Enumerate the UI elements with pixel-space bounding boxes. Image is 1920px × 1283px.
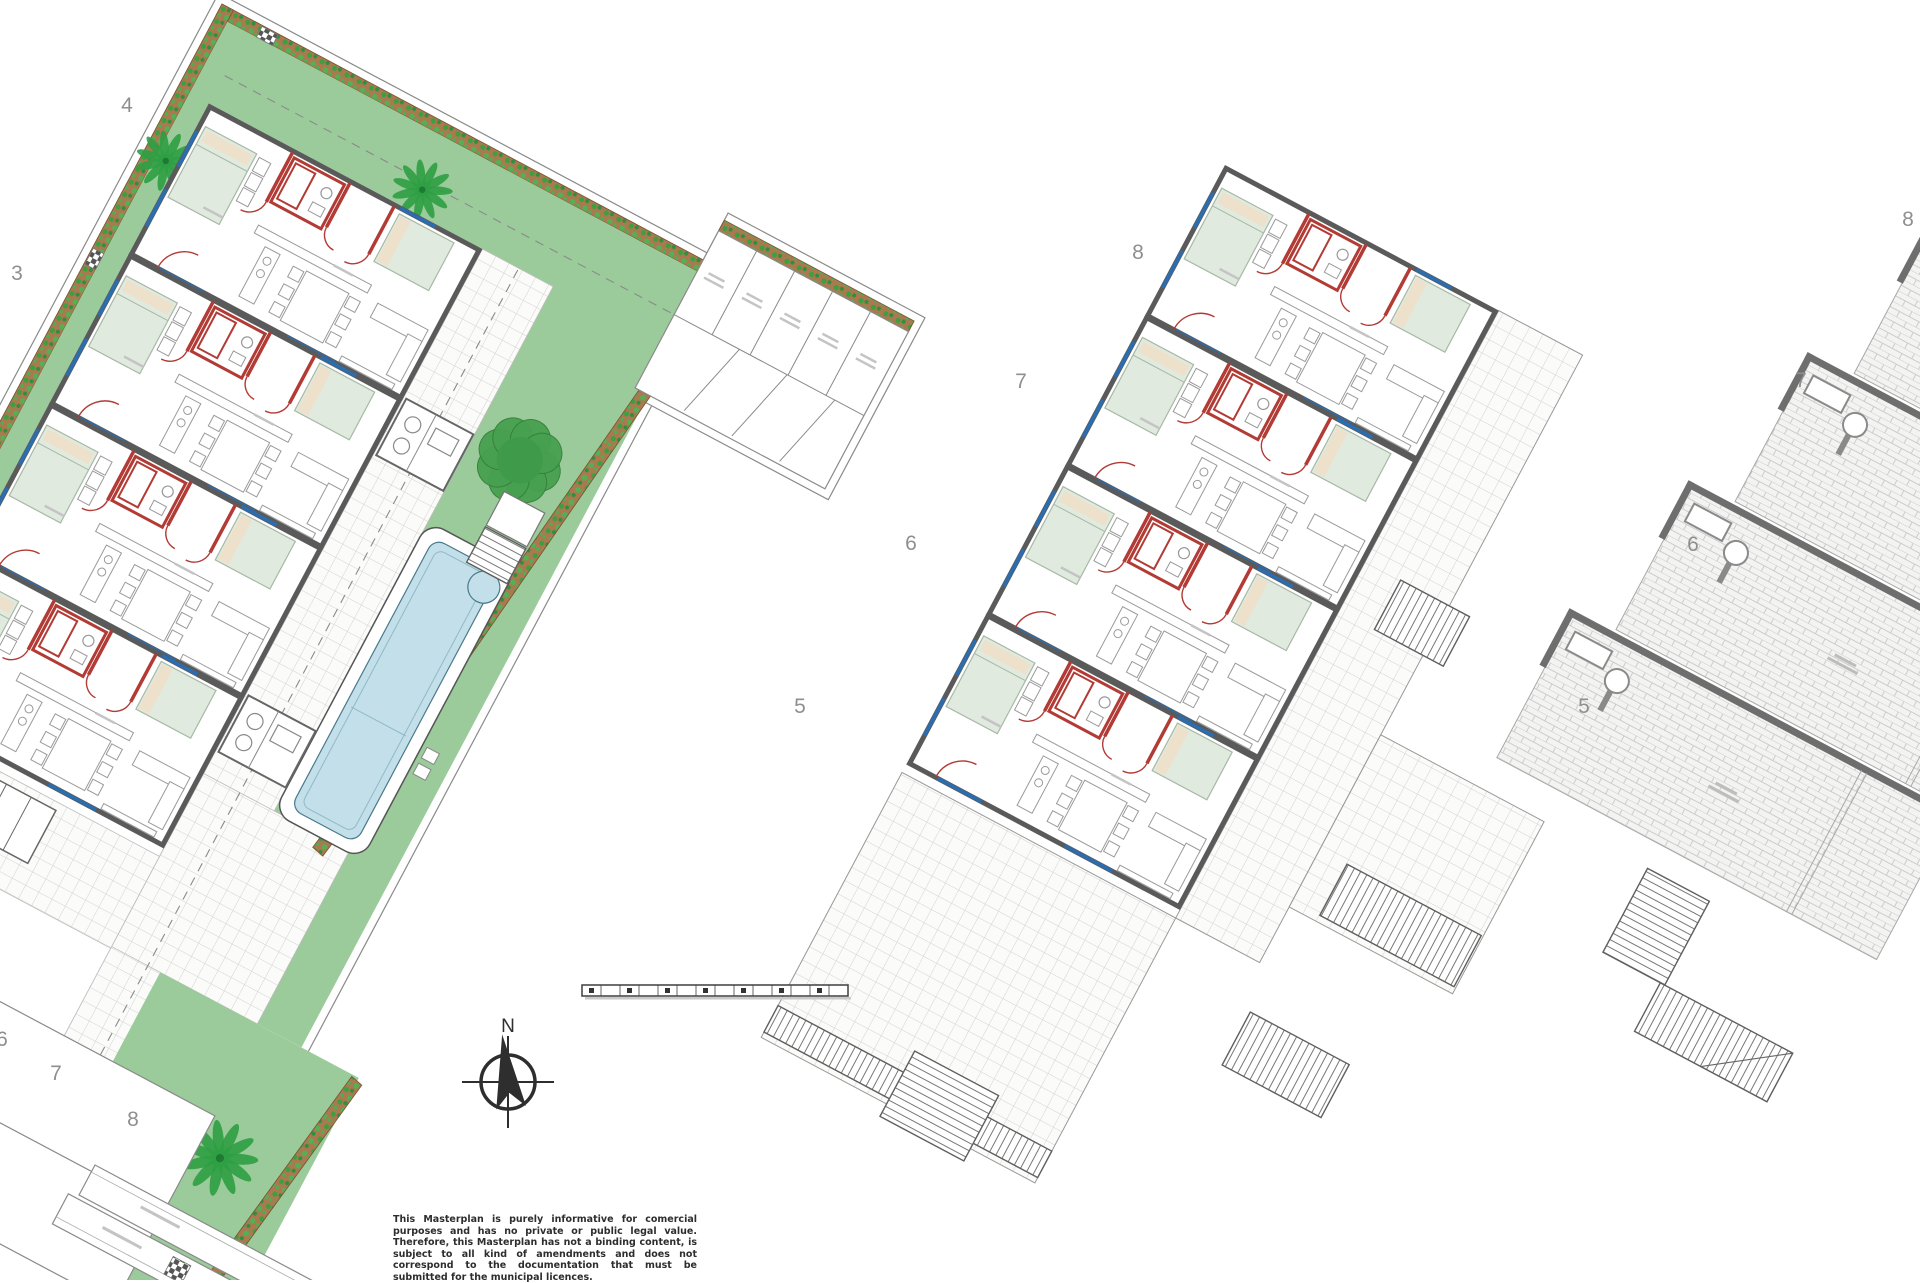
unit-number-label: 8 bbox=[1902, 208, 1914, 231]
unit-number-label: 7 bbox=[1795, 369, 1807, 392]
disclaimer-text: This Masterplan is purely informative fo… bbox=[393, 1214, 697, 1283]
parking-space-label: 8 bbox=[127, 1108, 139, 1131]
compass-needle-icon bbox=[487, 1033, 526, 1110]
graphic-scale-bar bbox=[582, 985, 851, 1000]
unit-number-label: 6 bbox=[1687, 533, 1699, 556]
neighbor-plot-label: 3 bbox=[11, 262, 23, 285]
north-compass: N bbox=[462, 1016, 554, 1128]
unit-number-label: 5 bbox=[1578, 695, 1590, 718]
stairs bbox=[1222, 1012, 1349, 1118]
stairs bbox=[1635, 983, 1793, 1102]
unit-number-label: 8 bbox=[1132, 241, 1144, 264]
parking-space-label: 6 bbox=[0, 1028, 8, 1051]
compass-north-label: N bbox=[501, 1016, 515, 1037]
parking-space-label: 7 bbox=[50, 1062, 62, 1085]
masterplan-canvas: N 4 3 6 7 8 8 7 6 5 8 7 6 5 bbox=[0, 0, 1920, 1280]
unit-number-label: 5 bbox=[794, 695, 806, 718]
unit-number-label: 7 bbox=[1015, 370, 1027, 393]
stairs bbox=[1603, 868, 1709, 985]
unit-number-label: 6 bbox=[905, 532, 917, 555]
neighbor-plot-label: 4 bbox=[121, 94, 133, 117]
